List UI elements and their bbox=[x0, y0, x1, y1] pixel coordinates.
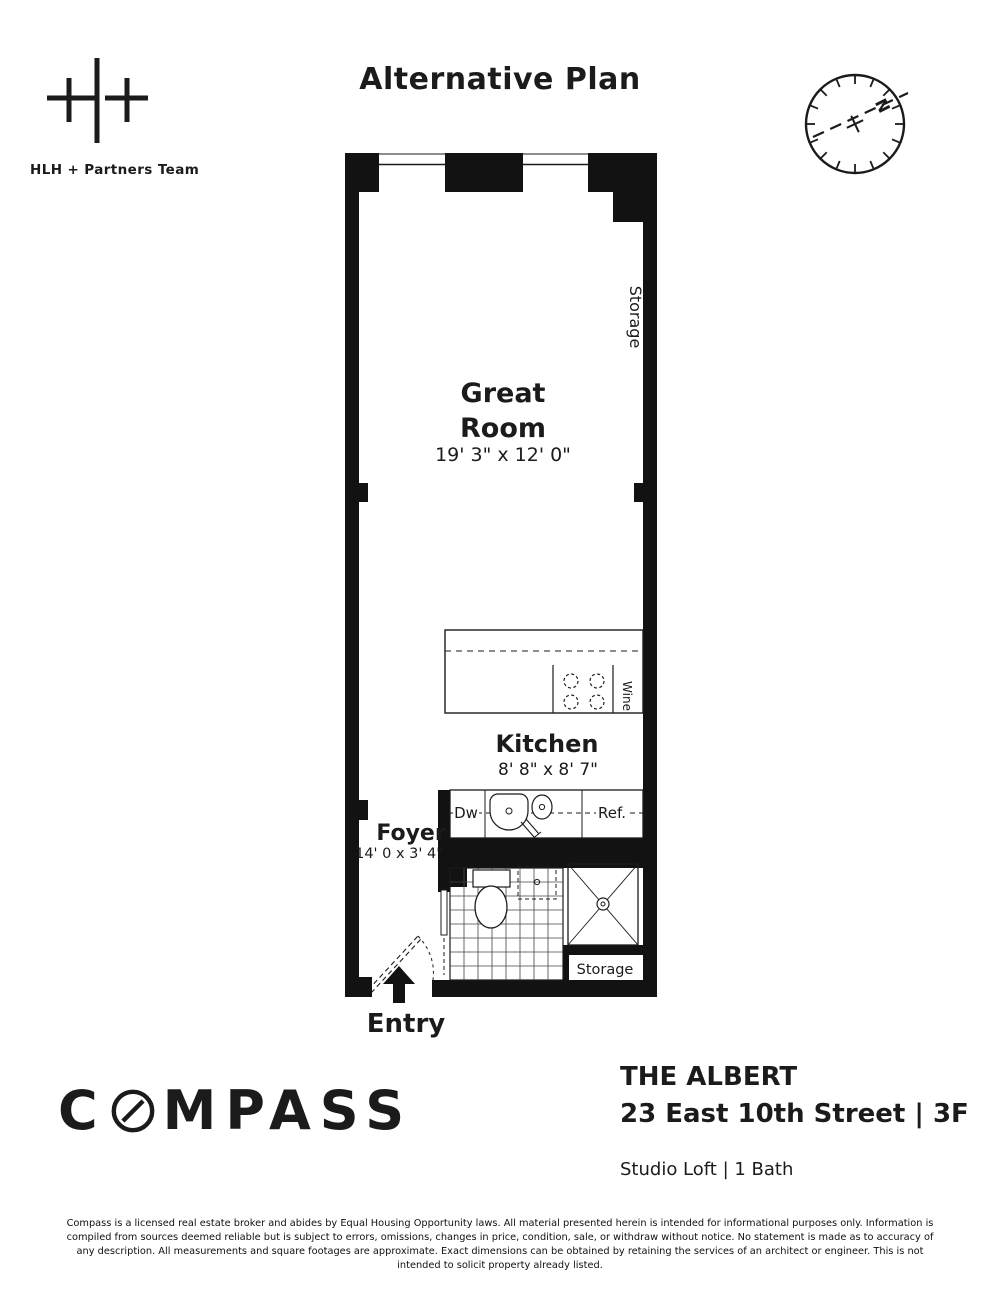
floor-plan-drawing: Great Room 19' 3" x 12' 0" Storage Wine … bbox=[338, 145, 668, 1050]
compass-logo-o-icon bbox=[109, 1087, 157, 1135]
legal-disclaimer: Compass is a licensed real estate broker… bbox=[58, 1217, 942, 1273]
entry-label: Entry bbox=[367, 1009, 446, 1039]
wine-cooler-label: Wine bbox=[620, 681, 634, 711]
great-room-name-line2: Room bbox=[460, 413, 546, 444]
unit-info: Studio Loft | 1 Bath bbox=[620, 1159, 793, 1180]
shower bbox=[568, 864, 638, 945]
needle-cross bbox=[843, 112, 867, 136]
foyer-name: Foyer bbox=[376, 821, 446, 846]
great-room-label: Great Room 19' 3" x 12' 0" bbox=[435, 378, 571, 466]
kitchen-sink bbox=[490, 794, 528, 830]
kitchen-name: Kitchen bbox=[496, 730, 599, 758]
appliance-row: Dw Ref. bbox=[450, 790, 643, 840]
kitchen-dimensions: 8' 8" x 8' 7" bbox=[498, 760, 598, 780]
storage-bottom-label: Storage bbox=[577, 962, 634, 978]
kitchen-label: Kitchen 8' 8" x 8' 7" bbox=[496, 730, 599, 780]
foyer-dimensions: 14' 0 x 3' 4" bbox=[355, 846, 443, 862]
compass-logo: C MPASS bbox=[58, 1084, 413, 1138]
compass-rose-icon: N bbox=[798, 66, 912, 182]
storage-top-label: Storage bbox=[626, 286, 645, 349]
great-room-dimensions: 19' 3" x 12' 0" bbox=[435, 444, 571, 466]
toilet-bowl bbox=[475, 886, 507, 928]
entry-arrow-icon bbox=[383, 966, 415, 1003]
compass-logo-text-mpass: MPASS bbox=[163, 1084, 414, 1138]
kitchen-sink-small bbox=[532, 795, 552, 819]
north-needle bbox=[813, 93, 908, 137]
dishwasher-label: Dw bbox=[454, 804, 478, 822]
stove-burners bbox=[564, 674, 604, 709]
floor-plan-page: HLH + Partners Team Alternative Plan N bbox=[0, 0, 1000, 1294]
north-label: N bbox=[871, 95, 894, 116]
bathroom-door bbox=[441, 890, 447, 935]
toilet-tank bbox=[473, 870, 510, 887]
team-name: HLH + Partners Team bbox=[30, 162, 199, 178]
refrigerator-label: Ref. bbox=[598, 804, 626, 822]
building-name: THE ALBERT bbox=[620, 1062, 797, 1092]
great-room-name-line1: Great bbox=[461, 378, 546, 409]
compass-logo-text-c: C bbox=[58, 1084, 107, 1138]
foyer-label: Foyer 14' 0 x 3' 4" bbox=[355, 821, 446, 862]
bathroom-vanity bbox=[518, 866, 556, 899]
building-address: 23 East 10th Street | 3F bbox=[620, 1099, 969, 1129]
kitchen-counter bbox=[445, 630, 643, 713]
